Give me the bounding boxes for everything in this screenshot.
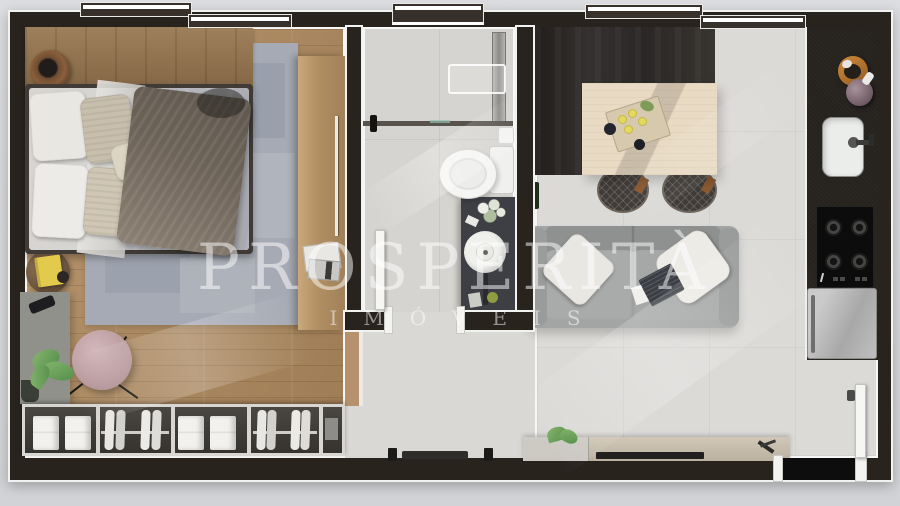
dining-table bbox=[582, 83, 717, 175]
floor-speaker bbox=[484, 448, 493, 461]
cooktop-tick bbox=[820, 273, 824, 282]
linen-stack bbox=[178, 416, 204, 450]
closet-divider bbox=[247, 407, 251, 453]
chair-strap bbox=[634, 176, 649, 194]
sofa bbox=[527, 226, 739, 328]
hanging-clothes bbox=[266, 410, 276, 450]
linen-stack bbox=[65, 416, 91, 450]
hanging-clothes bbox=[290, 410, 300, 450]
chair-strap bbox=[701, 176, 716, 194]
bathroom-door bbox=[375, 230, 385, 310]
side-cabinet bbox=[298, 56, 345, 330]
entry-threshold bbox=[781, 458, 857, 480]
window-glass bbox=[191, 17, 289, 21]
pink-lounge-chair bbox=[72, 330, 132, 390]
cooktop bbox=[816, 206, 874, 288]
fridge-handle bbox=[811, 295, 815, 353]
hanging-clothes bbox=[300, 410, 310, 450]
bedroom-window bbox=[80, 2, 192, 17]
soundbar bbox=[402, 451, 468, 459]
burner bbox=[851, 253, 868, 270]
kitchen-faucet-handle bbox=[869, 134, 874, 146]
shower-niche bbox=[448, 64, 506, 94]
blanket-fringe bbox=[197, 88, 245, 118]
window-glass bbox=[588, 7, 700, 11]
hanging-clothes bbox=[256, 410, 266, 450]
dark-cup bbox=[604, 123, 616, 135]
sink-drain bbox=[483, 250, 488, 255]
floor-speaker bbox=[388, 448, 397, 461]
living-window bbox=[700, 15, 806, 29]
hanging-clothes bbox=[140, 410, 150, 450]
kitchen-sink bbox=[822, 117, 864, 177]
wall-bathroom-living bbox=[515, 25, 535, 330]
tv bbox=[596, 452, 704, 459]
lemon-slice bbox=[624, 125, 633, 134]
linen-stack bbox=[210, 416, 236, 450]
wall-bathroom-south-left bbox=[343, 310, 387, 332]
bedroom-window bbox=[188, 14, 292, 28]
entry-door-jamb bbox=[773, 455, 783, 482]
burner bbox=[825, 219, 842, 236]
closet-divider bbox=[171, 407, 175, 453]
dark-bottle bbox=[634, 139, 645, 150]
closet-divider bbox=[319, 407, 323, 453]
window-glass bbox=[83, 5, 189, 9]
bathroom-door-jamb bbox=[384, 306, 393, 334]
glass-tint bbox=[430, 120, 450, 123]
lemon-slice bbox=[618, 115, 627, 124]
hall-floor bbox=[345, 312, 535, 458]
bathroom-window bbox=[392, 3, 484, 25]
candle bbox=[487, 292, 498, 303]
lemon-slice bbox=[628, 109, 637, 118]
cooktop-knob bbox=[855, 277, 860, 281]
hanging-clothes bbox=[115, 410, 125, 450]
refrigerator bbox=[807, 288, 877, 359]
floor-plan-render: PROSPERITÀ IMÓVEIS bbox=[0, 0, 900, 506]
bathroom-door-jamb bbox=[456, 306, 465, 334]
linen-stack bbox=[33, 416, 59, 450]
dark-cup bbox=[57, 271, 69, 283]
entry-door bbox=[855, 384, 866, 458]
hanging-clothes bbox=[104, 410, 114, 450]
cabinet-handle bbox=[335, 116, 338, 236]
living-window bbox=[585, 4, 703, 19]
cooktop-knob bbox=[862, 277, 867, 281]
burner bbox=[851, 219, 868, 236]
bedroom-door-jamb bbox=[359, 330, 363, 406]
window-glass bbox=[703, 18, 803, 22]
window-glass bbox=[395, 6, 481, 10]
toilet-seat bbox=[449, 158, 487, 190]
entry-door-handle bbox=[847, 390, 855, 401]
rug-patch bbox=[180, 258, 255, 313]
wall-bedroom-bathroom bbox=[345, 25, 363, 330]
lemon-slice bbox=[638, 117, 647, 126]
burner bbox=[825, 253, 842, 270]
bed-pillow bbox=[31, 163, 89, 240]
wall-bathroom-south-right bbox=[459, 310, 535, 332]
closet-divider bbox=[96, 407, 100, 453]
cooktop-knob bbox=[833, 277, 838, 281]
closet-box bbox=[325, 418, 338, 440]
hanging-clothes bbox=[151, 410, 161, 450]
closet bbox=[22, 404, 345, 456]
vanity-tray bbox=[468, 292, 482, 308]
vanity bbox=[461, 197, 515, 313]
shower-door-handle bbox=[370, 115, 377, 132]
magazine-stack bbox=[307, 259, 341, 282]
double-bed bbox=[25, 84, 253, 254]
toilet-paper-roll bbox=[498, 127, 514, 144]
cooktop-knob bbox=[840, 277, 845, 281]
bed-pillow bbox=[29, 90, 90, 162]
